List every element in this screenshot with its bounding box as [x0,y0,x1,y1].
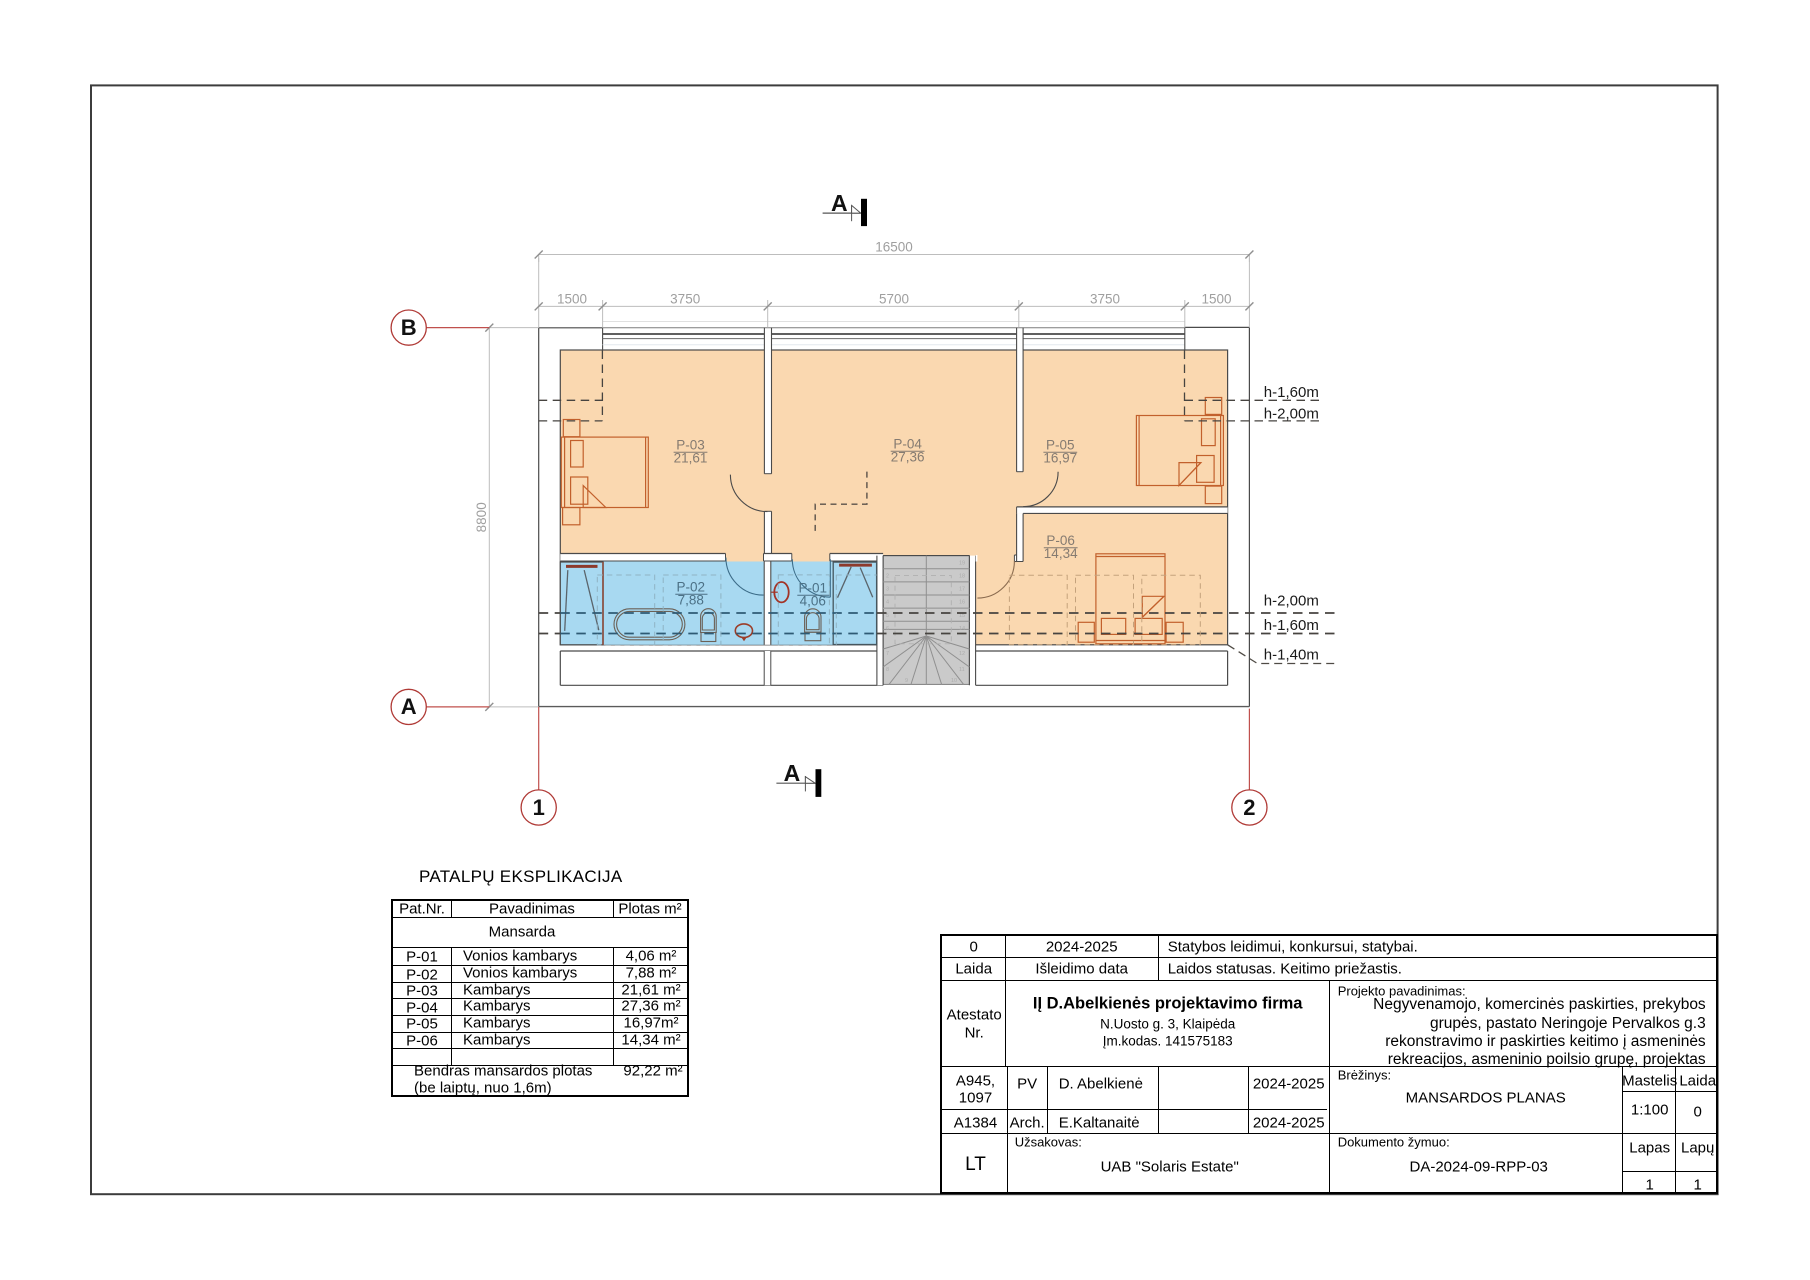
svg-text:16: 16 [959,600,965,606]
svg-text:h-1,60m: h-1,60m [1264,384,1319,401]
svg-text:12: 12 [959,651,965,657]
svg-text:h-1,40m: h-1,40m [1264,647,1319,664]
svg-text:6: 6 [886,626,889,632]
svg-text:3750: 3750 [670,291,700,306]
svg-text:18: 18 [959,574,965,580]
svg-text:1500: 1500 [1201,291,1231,306]
svg-text:17: 17 [959,587,965,593]
svg-text:19: 19 [959,561,965,567]
svg-text:A: A [784,760,801,786]
svg-text:2: 2 [1243,795,1255,820]
svg-text:A: A [831,190,848,216]
svg-text:5700: 5700 [879,291,909,306]
svg-text:8800: 8800 [474,502,489,532]
svg-text:10: 10 [951,678,957,684]
svg-text:h-1,60m: h-1,60m [1264,617,1319,634]
svg-text:h-2,00m: h-2,00m [1264,593,1319,610]
svg-text:2: 2 [886,574,889,580]
svg-text:1500: 1500 [557,291,587,306]
svg-text:h-2,00m: h-2,00m [1264,406,1319,423]
svg-text:16500: 16500 [875,240,913,255]
svg-text:3750: 3750 [1090,291,1120,306]
svg-text:1: 1 [533,795,545,820]
svg-text:14: 14 [959,626,965,632]
svg-text:B: B [401,315,417,340]
svg-text:4: 4 [886,600,889,606]
svg-text:8: 8 [886,667,889,673]
svg-text:9: 9 [905,678,908,684]
svg-text:7: 7 [886,651,889,657]
svg-text:A: A [401,694,417,719]
svg-text:3: 3 [886,587,889,593]
svg-text:11: 11 [959,667,965,673]
